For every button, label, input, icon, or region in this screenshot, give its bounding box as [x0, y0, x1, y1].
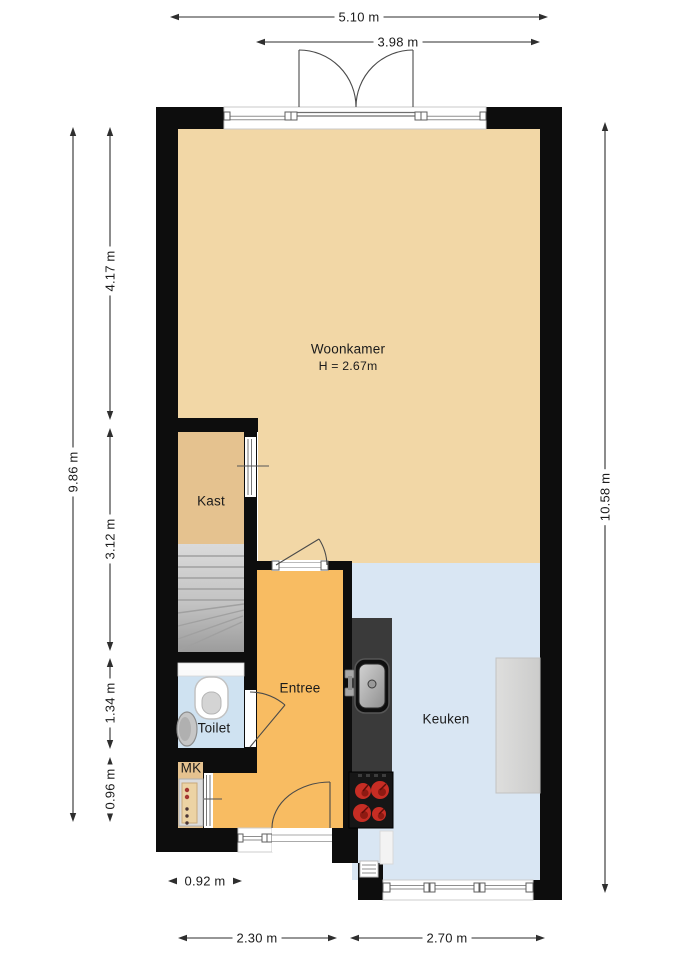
keuken-label: Keuken [423, 712, 470, 726]
sink-drain [368, 680, 376, 688]
french-doors [299, 50, 413, 107]
kitchen-cabinet-end [380, 831, 393, 864]
dim-right-total: 10.58 m [598, 469, 613, 525]
dim-left-seg2: 3.12 m [103, 515, 118, 564]
french-door-right-swing [356, 50, 413, 107]
kitchen-appliance [496, 658, 540, 793]
stove-base [349, 772, 393, 828]
wall-toilet-mk [156, 748, 257, 762]
wall-left [156, 107, 178, 852]
wall-hall-stub [213, 762, 257, 773]
woonkamer-label: Woonkamer [311, 342, 385, 356]
floor-plan-drawing [0, 0, 679, 960]
kast-door [245, 437, 256, 497]
wall-frontdoor-corner [332, 828, 358, 863]
kast-label: Kast [197, 494, 225, 508]
top-window-band [224, 50, 486, 129]
dim-left-total: 9.86 m [66, 448, 81, 497]
wall-kast-top [156, 418, 258, 432]
toilet-label: Toilet [198, 721, 231, 735]
dim-top-inner: 3.98 m [374, 35, 423, 50]
corner-sink-basin [179, 717, 191, 741]
dim-left-seg3: 1.34 m [103, 679, 118, 728]
woonkamer-floor [178, 129, 540, 418]
wall-right [540, 107, 562, 900]
toilet-door-opening [245, 690, 256, 747]
woonkamer-floor-lower [258, 418, 540, 563]
front-door-opening [272, 828, 332, 852]
toilet-seat [202, 692, 221, 714]
wall-bottom-left [156, 828, 238, 852]
dim-bottom-right: 2.70 m [423, 931, 472, 946]
window-band [224, 107, 486, 129]
french-door-left-swing [299, 50, 356, 107]
kast-floor [178, 432, 244, 544]
woonkamer-height-label: H = 2.67m [319, 360, 378, 372]
floor-plan: Woonkamer H = 2.67m Kast Entree Toilet M… [0, 0, 679, 960]
keuken-bottom-window [383, 880, 533, 900]
dim-bottom-left: 2.30 m [233, 931, 282, 946]
dim-top-total: 5.10 m [335, 10, 384, 25]
wall-stairs-toilet [178, 652, 257, 663]
dim-left-seg4: 0.96 m [103, 765, 118, 814]
wall-top-left-corner [156, 107, 224, 129]
woonkamer-door-opening [272, 560, 328, 571]
wall-keuken-bottom-right [533, 880, 562, 900]
dim-bottom-offset: 0.92 m [181, 874, 230, 889]
toilet-cistern-shelf [178, 663, 244, 676]
entree-label: Entree [280, 681, 321, 695]
meter-panel [182, 783, 197, 823]
meter-cabinet [179, 779, 203, 826]
stairs [178, 544, 244, 652]
dim-left-seg1: 4.17 m [103, 247, 118, 296]
entree-floor-lower [213, 773, 257, 828]
mk-door [204, 773, 213, 828]
stove [349, 772, 393, 828]
mk-label: MK [181, 761, 202, 775]
faucet-stem [348, 676, 352, 690]
